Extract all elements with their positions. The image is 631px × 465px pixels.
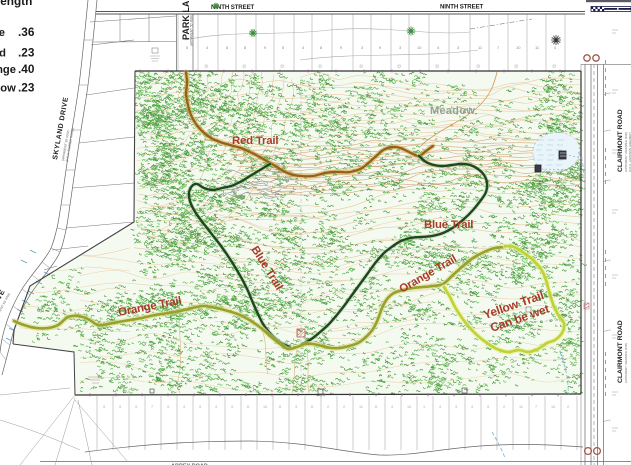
svg-text:5: 5 [199,405,201,409]
svg-text:2: 2 [327,405,329,409]
svg-text:NINTH STREET: NINTH STREET [440,4,484,11]
svg-text:Orange: Orange [0,64,16,76]
svg-text:4: 4 [183,405,185,409]
svg-text:6: 6 [375,405,377,409]
svg-text:6: 6 [247,405,249,409]
svg-text:9: 9 [167,405,169,409]
svg-text:7: 7 [151,405,153,409]
svg-text:3: 3 [455,405,457,409]
svg-text:Blue Trail: Blue Trail [424,219,473,231]
svg-text:6: 6 [311,405,313,409]
svg-text:8: 8 [279,405,281,409]
svg-text:5: 5 [103,405,105,409]
svg-text:10: 10 [407,405,411,409]
svg-text:CLAIRMONT ROAD: CLAIRMONT ROAD [617,109,624,172]
svg-text:4: 4 [439,405,441,409]
svg-text:.23: .23 [18,46,35,60]
svg-text:3: 3 [295,405,297,409]
svg-text:4: 4 [391,405,393,409]
svg-text:4: 4 [215,405,217,409]
svg-text:Red: Red [0,48,6,60]
svg-text:(APPARENT VARIABLE R/W): (APPARENT VARIABLE R/W) [624,343,628,383]
svg-text:Blue: Blue [0,27,5,39]
svg-text:Length: Length [0,0,32,8]
svg-text:7: 7 [535,405,537,409]
svg-text:(APPARENT 50' R/W): (APPARENT 50' R/W) [190,15,194,46]
svg-text:9: 9 [231,405,233,409]
svg-text:9: 9 [135,405,137,409]
svg-text:5: 5 [487,405,489,409]
svg-text:5: 5 [119,405,121,409]
svg-text:4: 4 [471,405,473,409]
svg-text:Meadow: Meadow [430,105,475,117]
svg-text:10: 10 [263,405,267,409]
svg-text:.40: .40 [18,62,35,76]
svg-text:.23: .23 [18,80,35,94]
svg-text:Yellow: Yellow [0,82,16,94]
svg-text:10: 10 [417,45,422,50]
svg-text:11: 11 [519,405,523,409]
svg-text:11: 11 [359,405,363,409]
svg-text:2: 2 [343,405,345,409]
svg-text:10: 10 [551,405,555,409]
svg-text:10: 10 [516,45,521,50]
svg-text:.36: .36 [18,25,35,39]
svg-text:2: 2 [567,405,569,409]
svg-text:Red Trail: Red Trail [232,135,278,147]
svg-text:1: 1 [423,405,425,409]
svg-text:CLAIRMONT ROAD: CLAIRMONT ROAD [617,320,624,383]
svg-text:2: 2 [503,405,505,409]
